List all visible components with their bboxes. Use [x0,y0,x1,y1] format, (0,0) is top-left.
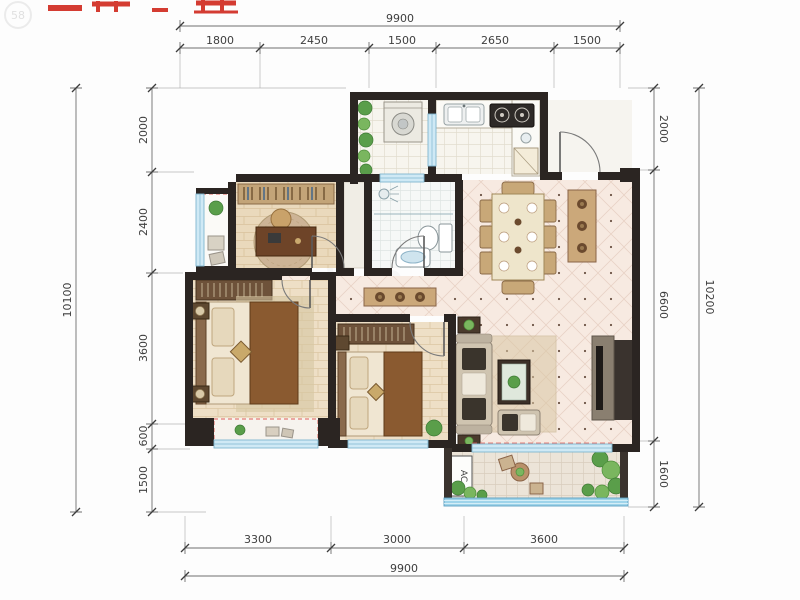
dim-right: 2000 6600 1600 10200 [648,84,716,511]
dining-chair [502,281,534,294]
dim-bottom-seg-2: 3000 [383,533,411,546]
books [266,427,279,436]
books [281,428,293,438]
dim-top-seg-4: 2650 [481,34,509,47]
dim-top-seg-1: 1800 [206,34,234,47]
prep-sink [521,133,531,143]
dim-right-total: 10200 [703,280,716,315]
dining-table [492,194,544,280]
dim-right-seg-3: 1600 [657,460,670,488]
desk [256,227,316,256]
pillow [212,358,234,396]
dim-left-seg-2: 2400 [137,208,150,236]
dim-top-total: 9900 [386,12,414,25]
wash-basin [396,248,430,267]
plant-icon [235,425,245,435]
dim-left-total: 10100 [61,283,74,318]
desk-chair [271,209,291,229]
side-table [458,317,480,333]
dim-top: 9900 1800 2450 1500 2650 1500 [176,12,624,54]
dim-top-seg-2: 2450 [300,34,328,47]
nightstand [334,336,349,350]
double-bed [338,352,422,436]
dim-left-seg-4: 600 [137,426,150,447]
blanket [384,352,422,436]
dim-bottom-seg-3: 3600 [530,533,558,546]
tv-cabinet [592,336,614,420]
dim-right-seg-2: 6600 [657,291,670,319]
blanket [250,302,298,404]
floor-plan-canvas: 58 58 9900 1800 2450 1500 2650 [0,0,800,600]
bookshelf [238,184,334,204]
bay-chair [208,236,224,250]
tv-wall-column [614,340,632,420]
pillow [212,308,234,346]
dim-left-seg-3: 3600 [137,334,150,362]
nightstand [192,303,209,319]
sideboard [568,190,596,262]
dim-bottom-total: 9900 [390,562,418,575]
coffee-table [498,360,530,404]
refrigerator [514,148,538,174]
stove [490,104,534,127]
dim-bottom: 3300 3000 3600 9900 [181,533,628,582]
plant-icon [426,420,442,436]
bench-seat [498,410,540,435]
dim-left: 10100 2000 2400 3600 600 1500 [61,84,158,516]
tv-icon [596,346,603,410]
dim-left-seg-1: 2000 [137,116,150,144]
dining-chair [502,182,534,195]
watermark-58-logo: 58 [5,2,31,28]
balcony-railing-glass [444,498,628,506]
kitchen-sink [444,104,484,125]
master-bedroom [192,280,314,412]
pillow [350,357,368,389]
nightstand [192,386,209,402]
dim-top-seg-3: 1500 [388,34,416,47]
dim-left-seg-5: 1500 [137,466,150,494]
ac-label: AC [458,470,468,482]
pillow [350,397,368,429]
dim-right-seg-1: 2000 [657,115,670,143]
dim-bottom-seg-1: 3300 [244,533,272,546]
plant-icon [209,201,223,215]
watermark-text: 58 [11,9,25,22]
washing-machine [384,102,422,142]
red-title-fragment [48,0,238,12]
sofa [456,334,492,434]
dim-top-seg-5: 1500 [573,34,601,47]
hallway-console [364,288,436,306]
balcony-chair [530,483,543,494]
double-bed [196,302,298,404]
floor-plan-screenshot: 58 58 9900 1800 2450 1500 2650 [0,0,800,600]
bay-stool [209,252,225,266]
